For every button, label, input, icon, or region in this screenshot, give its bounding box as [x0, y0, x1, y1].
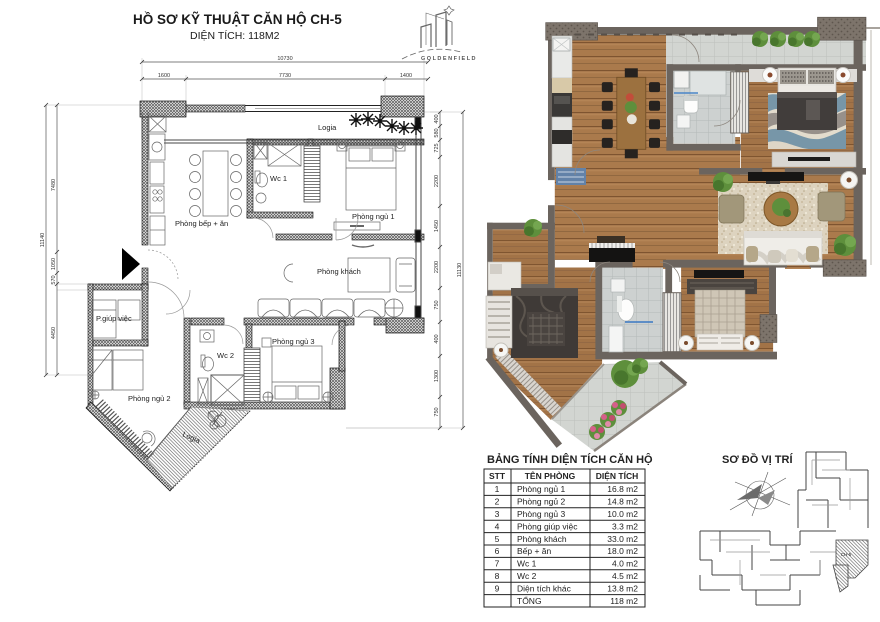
svg-text:Wc 2: Wc 2: [517, 571, 537, 581]
svg-text:10730: 10730: [277, 56, 292, 62]
svg-text:16.8 m2: 16.8 m2: [607, 484, 638, 494]
svg-text:SƠ ĐỒ VỊ TRÍ: SƠ ĐỒ VỊ TRÍ: [722, 453, 793, 466]
svg-text:1600: 1600: [158, 73, 170, 79]
svg-text:33.0 m2: 33.0 m2: [607, 534, 638, 544]
svg-text:118 m2: 118 m2: [610, 596, 638, 606]
svg-text:400: 400: [434, 114, 440, 123]
svg-text:BẢNG TÍNH DIỆN TÍCH CĂN HỘ: BẢNG TÍNH DIỆN TÍCH CĂN HỘ: [487, 453, 653, 466]
svg-text:400: 400: [434, 334, 440, 343]
svg-text:CH-5: CH-5: [841, 552, 852, 557]
svg-text:HỒ SƠ KỸ THUẬT CĂN HỘ CH-5: HỒ SƠ KỸ THUẬT CĂN HỘ CH-5: [133, 12, 342, 27]
svg-text:STT: STT: [489, 471, 506, 481]
svg-text:Phòng khách: Phòng khách: [517, 534, 567, 544]
svg-text:11140: 11140: [40, 233, 46, 247]
svg-text:4450: 4450: [51, 327, 57, 339]
svg-text:10.0 m2: 10.0 m2: [607, 509, 638, 519]
svg-text:Wc 2: Wc 2: [217, 351, 234, 360]
svg-text:P.giúp việc: P.giúp việc: [96, 314, 132, 323]
svg-text:1400: 1400: [400, 73, 412, 79]
svg-text:4: 4: [495, 521, 500, 531]
svg-text:5: 5: [495, 534, 500, 544]
svg-text:Diện tích khác: Diện tích khác: [517, 583, 572, 593]
svg-text:14.8 m2: 14.8 m2: [607, 497, 638, 507]
svg-text:Phòng khách: Phòng khách: [317, 267, 361, 276]
svg-text:Bếp + ăn: Bếp + ăn: [517, 546, 552, 556]
svg-text:2200: 2200: [434, 175, 440, 187]
svg-text:580: 580: [434, 128, 440, 137]
svg-text:Phòng bếp + ăn: Phòng bếp + ăn: [175, 219, 228, 228]
svg-text:4.5 m2: 4.5 m2: [612, 571, 638, 581]
svg-text:TỔNG: TỔNG: [517, 595, 542, 606]
svg-text:3: 3: [495, 509, 500, 519]
svg-text:8: 8: [495, 571, 500, 581]
svg-text:1300: 1300: [434, 370, 440, 382]
svg-text:11130: 11130: [457, 263, 463, 277]
svg-text:1: 1: [495, 484, 500, 494]
svg-text:Phòng ngủ 3: Phòng ngủ 3: [517, 509, 565, 519]
svg-text:1450: 1450: [434, 220, 440, 232]
svg-text:Wc 1: Wc 1: [270, 174, 287, 183]
svg-text:Phòng giúp việc: Phòng giúp việc: [517, 521, 578, 531]
svg-text:2: 2: [495, 497, 500, 507]
svg-text:4.0 m2: 4.0 m2: [612, 559, 638, 569]
svg-text:750: 750: [434, 407, 440, 416]
svg-text:TÊN PHÒNG: TÊN PHÒNG: [525, 470, 576, 481]
svg-text:570: 570: [51, 275, 57, 284]
svg-text:13.8 m2: 13.8 m2: [607, 583, 638, 593]
svg-text:725: 725: [434, 143, 440, 152]
svg-text:3.3 m2: 3.3 m2: [612, 521, 638, 531]
svg-text:1050: 1050: [51, 258, 57, 270]
svg-text:9: 9: [495, 583, 500, 593]
svg-text:6: 6: [495, 546, 500, 556]
svg-text:DIỆN TÍCH: DIỆN TÍCH: [596, 470, 639, 481]
svg-text:Wc 1: Wc 1: [517, 559, 537, 569]
svg-text:Phòng ngủ 1: Phòng ngủ 1: [352, 212, 395, 221]
svg-text:Phòng ngủ 2: Phòng ngủ 2: [128, 394, 171, 403]
svg-text:Phòng ngủ 1: Phòng ngủ 1: [517, 484, 565, 494]
svg-text:750: 750: [434, 300, 440, 309]
svg-text:7730: 7730: [279, 73, 291, 79]
svg-text:7480: 7480: [51, 179, 57, 191]
svg-text:7: 7: [495, 559, 500, 569]
svg-text:Phòng ngủ 3: Phòng ngủ 3: [272, 337, 315, 346]
svg-text:DIỆN TÍCH: 118M2: DIỆN TÍCH: 118M2: [190, 29, 280, 42]
svg-text:18.0 m2: 18.0 m2: [607, 546, 638, 556]
svg-text:2200: 2200: [434, 261, 440, 273]
svg-text:Phòng ngủ 2: Phòng ngủ 2: [517, 497, 565, 507]
svg-text:Logia: Logia: [318, 123, 337, 132]
